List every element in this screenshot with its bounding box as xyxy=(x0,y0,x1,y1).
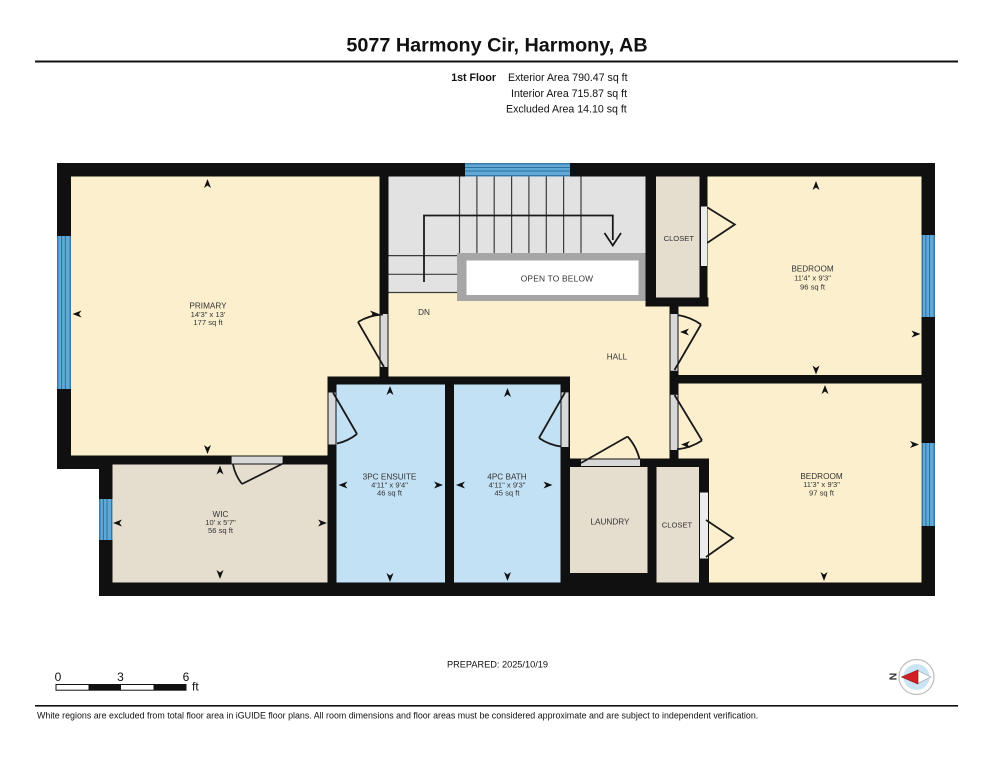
svg-text:ft: ft xyxy=(192,680,199,694)
svg-text:Interior Area 715.87 sq ft: Interior Area 715.87 sq ft xyxy=(511,88,627,100)
svg-text:PREPARED: 2025/10/19: PREPARED: 2025/10/19 xyxy=(447,660,548,670)
svg-text:Excluded Area 14.10 sq ft: Excluded Area 14.10 sq ft xyxy=(506,104,627,116)
svg-text:Exterior Area 790.47 sq ft: Exterior Area 790.47 sq ft xyxy=(508,72,628,84)
svg-text:177 sq ft: 177 sq ft xyxy=(193,318,223,327)
svg-text:BEDROOM: BEDROOM xyxy=(791,265,833,274)
svg-text:HALL: HALL xyxy=(607,353,628,362)
svg-text:45 sq ft: 45 sq ft xyxy=(495,488,521,497)
svg-text:1st Floor: 1st Floor xyxy=(451,72,496,84)
svg-text:6: 6 xyxy=(183,670,190,684)
svg-text:46 sq ft: 46 sq ft xyxy=(377,488,403,497)
svg-text:N: N xyxy=(887,673,899,681)
svg-text:97 sq ft: 97 sq ft xyxy=(809,488,835,497)
svg-text:11'4" x 9'3": 11'4" x 9'3" xyxy=(794,274,831,283)
svg-text:OPEN TO BELOW: OPEN TO BELOW xyxy=(521,274,594,284)
svg-text:5077 Harmony Cir, Harmony, AB: 5077 Harmony Cir, Harmony, AB xyxy=(346,35,647,57)
svg-text:LAUNDRY: LAUNDRY xyxy=(591,518,631,527)
svg-text:DN: DN xyxy=(418,308,430,317)
svg-text:3: 3 xyxy=(117,670,124,684)
svg-text:CLOSET: CLOSET xyxy=(664,234,695,243)
svg-text:CLOSET: CLOSET xyxy=(662,521,693,530)
svg-text:96 sq ft: 96 sq ft xyxy=(800,283,826,292)
svg-text:56 sq ft: 56 sq ft xyxy=(208,526,234,535)
svg-text:White regions are excluded fro: White regions are excluded from total fl… xyxy=(37,711,758,721)
svg-text:0: 0 xyxy=(55,670,62,684)
